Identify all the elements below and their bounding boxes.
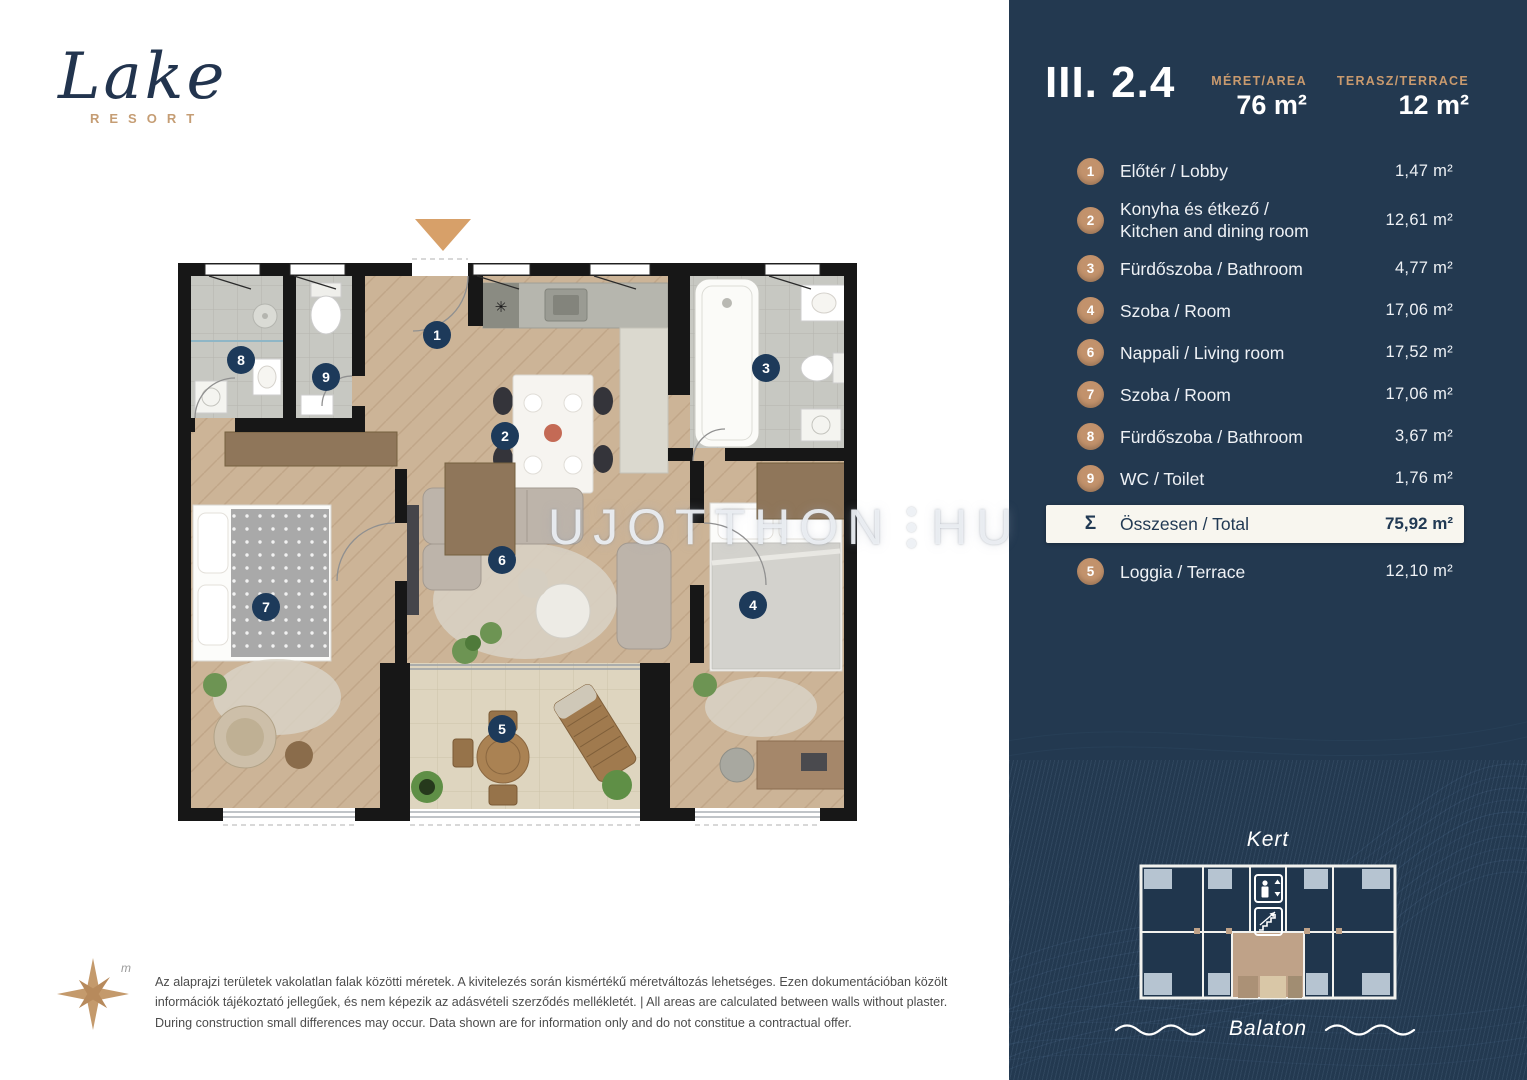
wave-left-icon — [1113, 1021, 1213, 1037]
watermark: UJOTTHON HU — [548, 498, 1021, 556]
room-badge: 4 — [1077, 297, 1104, 324]
room-area: 17,06 m² — [1385, 385, 1453, 404]
room-row-1: 1 Előtér / Lobby 1,47 m² — [1077, 156, 1453, 187]
total-area: 75,92 m² — [1385, 514, 1453, 534]
room-label: Fürdőszoba / Bathroom — [1120, 426, 1303, 448]
room-label: Fürdőszoba / Bathroom — [1120, 258, 1303, 280]
lake-resort-logo: Lake RESORT — [58, 44, 227, 126]
kitchen-cabinets — [620, 328, 668, 473]
room-label: Konyha és étkező / Kitchen and dining ro… — [1120, 198, 1309, 242]
plan-badge-3: 3 — [752, 354, 780, 382]
room-row-4: 4 Szoba / Room 17,06 m² — [1077, 295, 1453, 326]
room-badge: 8 — [1077, 423, 1104, 450]
panel-header: III. 2.4 MÉRET/AREA 76 m² TERASZ/TERRACE… — [1045, 58, 1469, 121]
room-area: 1,47 m² — [1395, 162, 1453, 181]
room-label: Nappali / Living room — [1120, 342, 1284, 364]
plan-badge-5: 5 — [488, 715, 516, 743]
area-value: 76 m² — [1211, 90, 1307, 121]
plan-badge-2: 2 — [491, 422, 519, 450]
plan-badge-6: 6 — [488, 546, 516, 574]
terrace-value: 12 m² — [1337, 90, 1469, 121]
room-area: 1,76 m² — [1395, 469, 1453, 488]
stool — [285, 741, 313, 769]
disclaimer-text: Az alaprajzi területek vakolatlan falak … — [155, 972, 955, 1033]
svg-text:4: 4 — [749, 597, 757, 613]
logo-title: Lake — [58, 44, 227, 111]
room-badge: 5 — [1077, 558, 1104, 585]
plan-badge-4: 4 — [739, 591, 767, 619]
room-area: 4,77 m² — [1395, 259, 1453, 278]
tv-console — [407, 505, 419, 615]
sigma-symbol: Σ — [1077, 513, 1104, 535]
building-location-map — [1138, 863, 1398, 1001]
unit-number: III. 2.4 — [1045, 58, 1175, 108]
loveseat — [617, 543, 671, 649]
room-row-9: 9 WC / Toilet 1,76 m² — [1077, 463, 1453, 494]
terrace-column: TERASZ/TERRACE 12 m² — [1337, 58, 1469, 121]
info-panel: III. 2.4 MÉRET/AREA 76 m² TERASZ/TERRACE… — [1009, 0, 1527, 1080]
room-label: WC / Toilet — [1120, 468, 1204, 490]
garden-label: Kert — [1009, 828, 1527, 852]
compass-rose-icon: m — [55, 956, 139, 1040]
plan-badge-8: 8 — [227, 346, 255, 374]
lake-label-row: Balaton — [1009, 1017, 1527, 1041]
watermark-left: UJOTTHON — [548, 498, 892, 556]
svg-text:5: 5 — [498, 721, 506, 737]
toilet — [801, 355, 833, 381]
floorplan-brochure-page: { "logo": { "title": "Lake", "subtitle":… — [0, 0, 1527, 1080]
total-row: Σ Összesen / Total 75,92 m² — [1046, 505, 1464, 543]
rug — [705, 677, 817, 737]
laptop — [801, 753, 827, 771]
desk-chair — [720, 748, 754, 782]
svg-text:1: 1 — [433, 327, 441, 343]
svg-text:7: 7 — [262, 599, 270, 615]
room-area: 12,10 m² — [1385, 562, 1453, 581]
north-label: m — [121, 961, 131, 975]
room-row-3: 3 Fürdőszoba / Bathroom 4,77 m² — [1077, 253, 1453, 284]
room-area: 12,61 m² — [1385, 211, 1453, 230]
toilet — [311, 296, 341, 334]
room-row-7: 7 Szoba / Room 17,06 m² — [1077, 379, 1453, 410]
room-list: 1 Előtér / Lobby 1,47 m² 2 Konyha és étk… — [1077, 156, 1453, 598]
room-badge: 7 — [1077, 381, 1104, 408]
room-badge: 9 — [1077, 465, 1104, 492]
room-row-2: 2 Konyha és étkező / Kitchen and dining … — [1077, 198, 1453, 242]
room-row-5-loggia: 5 Loggia / Terrace 12,10 m² — [1077, 556, 1453, 587]
plan-badge-1: 1 — [423, 321, 451, 349]
svg-text:3: 3 — [762, 360, 770, 376]
hand-basin — [301, 395, 333, 415]
room-label: Előtér / Lobby — [1120, 160, 1228, 182]
total-label: Összesen / Total — [1120, 514, 1249, 535]
room-label: Szoba / Room — [1120, 384, 1231, 406]
washing-machine — [801, 409, 841, 441]
room-area: 17,06 m² — [1385, 301, 1453, 320]
room-badge: 6 — [1077, 339, 1104, 366]
wave-right-icon — [1323, 1021, 1423, 1037]
room-badge: 2 — [1077, 207, 1104, 234]
lake-label: Balaton — [1229, 1017, 1307, 1041]
entrance-arrow — [415, 219, 471, 251]
kitchen-star: ✳ — [495, 299, 508, 316]
svg-text:2: 2 — [501, 428, 509, 444]
room-row-6: 6 Nappali / Living room 17,52 m² — [1077, 337, 1453, 368]
room-area: 17,52 m² — [1385, 343, 1453, 362]
watermark-right: HU — [931, 498, 1021, 556]
room-badge: 3 — [1077, 255, 1104, 282]
svg-text:9: 9 — [322, 369, 330, 385]
room-badge: 1 — [1077, 158, 1104, 185]
watermark-dots — [907, 507, 916, 548]
room-area: 3,67 m² — [1395, 427, 1453, 446]
terrace-label: TERASZ/TERRACE — [1337, 74, 1469, 88]
area-column: MÉRET/AREA 76 m² — [1211, 58, 1307, 121]
side-table — [518, 568, 548, 598]
room-label: Loggia / Terrace — [1120, 561, 1245, 583]
plan-badge-7: 7 — [252, 593, 280, 621]
room-row-8: 8 Fürdőszoba / Bathroom 3,67 m² — [1077, 421, 1453, 452]
svg-text:6: 6 — [498, 552, 506, 568]
building-minimap: Kert — [1009, 828, 1527, 1041]
svg-text:8: 8 — [237, 352, 245, 368]
plan-badge-9: 9 — [312, 363, 340, 391]
room-label: Szoba / Room — [1120, 300, 1231, 322]
area-label: MÉRET/AREA — [1211, 74, 1307, 88]
